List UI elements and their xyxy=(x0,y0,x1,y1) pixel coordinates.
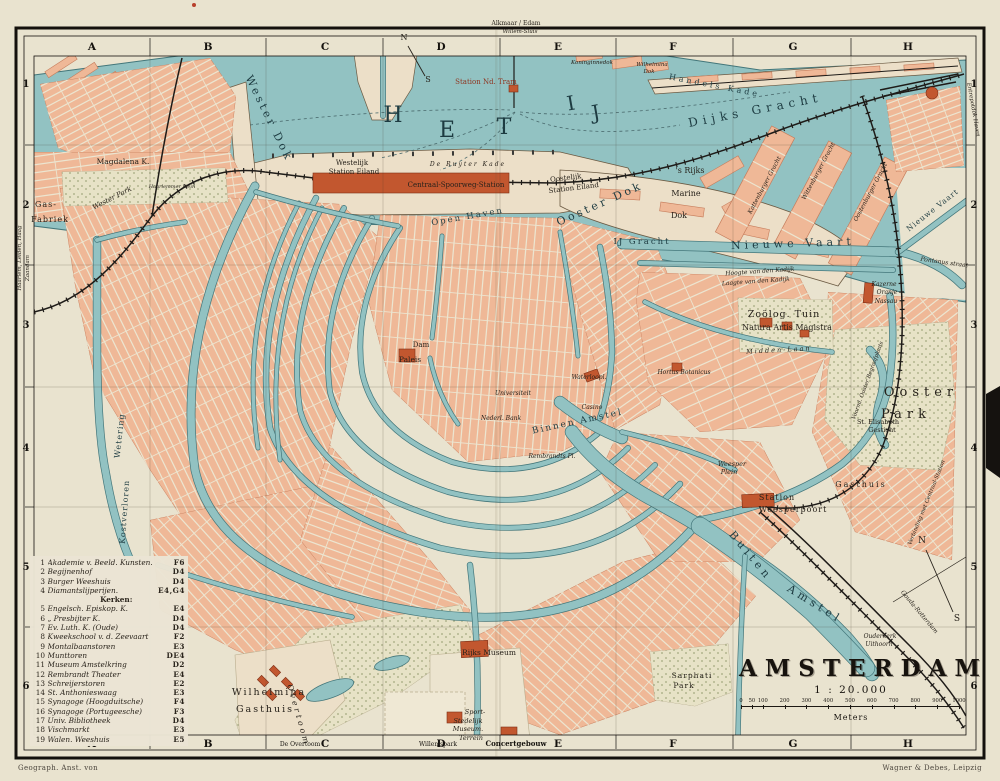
scale-tick xyxy=(937,705,938,709)
grid-number-left: 6 xyxy=(23,681,30,692)
grid-letter-top: H xyxy=(903,41,913,53)
map-page: AABBCCDDEEFFGGHH112233445566De OvertoomW… xyxy=(0,0,1000,781)
scale-tick xyxy=(763,705,764,709)
map-label: Uithoorn xyxy=(865,641,892,648)
map-label: Zaandam xyxy=(25,255,31,282)
map-label: Gasthuis xyxy=(835,480,886,489)
scale-tick-label: 1000 xyxy=(952,698,965,704)
scale-tick xyxy=(828,705,829,709)
map-label: Gas- xyxy=(35,200,57,209)
scale-tick-label: 100 xyxy=(758,698,768,704)
map-label: Station Eiland xyxy=(329,168,380,176)
scale-tick-label: 50 xyxy=(749,698,756,704)
map-label: Rembrandts Pl. xyxy=(527,453,575,460)
scale-bar: 0501002003004005006007008009001000 xyxy=(741,699,961,712)
legend-item: 3Burger WeeshuisD4 xyxy=(32,577,188,586)
grid-number-right: 4 xyxy=(971,443,978,454)
map-label: Dok xyxy=(642,69,655,75)
legend-item: 4Diamantslijperijen.E4,G4 xyxy=(32,586,188,595)
grid-number-left: 4 xyxy=(23,443,30,454)
map-label: Zoölog. Tuin xyxy=(748,309,821,320)
map-label: IJ Gracht xyxy=(613,237,670,247)
grid-letter-bottom: F xyxy=(669,738,677,750)
legend-item: 14St. AnthonieswaagE3 xyxy=(32,688,188,697)
border-street-label: Willemspark xyxy=(419,741,457,748)
legend-item: 17Univ. BibliotheekD4 xyxy=(32,716,188,725)
scale-tick-label: 300 xyxy=(801,698,811,704)
legend-item: 10MunttorenDE4 xyxy=(32,651,188,660)
map-label: Casino xyxy=(582,404,603,411)
grid-letter-bottom: C xyxy=(321,738,329,750)
map-label: Haarlemmer Plein xyxy=(148,184,195,190)
scale-tick-label: 200 xyxy=(780,698,790,704)
map-label: Marine xyxy=(671,189,700,198)
imprint-cartographer: Geograph. Anst. von xyxy=(18,764,98,772)
grid-letter-top: F xyxy=(669,41,677,53)
legend-item: 2BegijnenhofD4 xyxy=(32,567,188,576)
map-label: 's Rijks xyxy=(676,166,705,175)
map-label: Magdalena K. xyxy=(97,157,150,166)
scale-tick-label: 0 xyxy=(739,698,742,704)
map-label: S xyxy=(954,614,960,624)
map-label: Rijks Museum xyxy=(462,648,516,657)
map-label: Gesticht xyxy=(868,426,896,434)
map-label: Universiteit xyxy=(495,390,532,397)
map-label: Sarphati xyxy=(672,671,713,680)
map-label: Sport- xyxy=(465,708,485,716)
map-label: Ouderkerk xyxy=(864,633,897,640)
map-label: Paleis xyxy=(399,355,421,364)
grid-letter-bottom: E xyxy=(554,738,562,750)
grid-number-left: 1 xyxy=(23,79,30,90)
map-label: Station xyxy=(759,493,795,502)
legend-item: 5Engelsch. Episkop. K.E4 xyxy=(32,604,188,613)
map-label: T xyxy=(497,115,512,140)
grid-letter-top: C xyxy=(321,41,329,53)
border-street-label: Concertgebouw xyxy=(486,739,548,748)
map-label: Station Nd. Tram xyxy=(455,78,517,86)
grid-number-right: 6 xyxy=(971,681,978,692)
legend-item: 1Akademie v. Beeld. Kunsten.F6 xyxy=(32,558,188,567)
map-label: Centraal-Spoorweg-Station xyxy=(408,181,505,189)
map-label: Koninginnedok xyxy=(570,60,614,66)
map-label: Weesper xyxy=(718,460,747,468)
grid-number-left: 5 xyxy=(23,562,30,573)
scale-tick xyxy=(785,705,786,709)
legend-item: 7Ev. Luth. K. (Oude)D4 xyxy=(32,623,188,632)
scale-tick xyxy=(872,705,873,709)
border-street-label: De Overtoom xyxy=(280,741,321,748)
grid-letter-top: A xyxy=(87,41,97,53)
scale-tick-label: 500 xyxy=(845,698,855,704)
grid-number-right: 2 xyxy=(971,200,978,211)
map-label: Dok xyxy=(671,211,687,220)
legend-item: 19Walen. WeeshuisE5 xyxy=(32,735,188,744)
grid-letter-bottom: B xyxy=(204,738,213,750)
map-label: Fabriek xyxy=(31,215,69,224)
map-label: Museum. xyxy=(452,725,483,733)
map-label: Ooster xyxy=(884,385,958,400)
scale-tick-label: 600 xyxy=(867,698,877,704)
map-label: Kazerne xyxy=(870,281,897,288)
legend-section-header: Kerken: xyxy=(32,595,188,604)
scale-tick xyxy=(806,705,807,709)
scale-tick-label: 900 xyxy=(932,698,942,704)
grid-number-right: 3 xyxy=(971,320,978,331)
legend-item: 12Rembrandt TheaterE4 xyxy=(32,670,188,679)
map-label: Waterloopl. xyxy=(572,374,607,381)
map-label: Stedelijk xyxy=(453,717,482,725)
legend-item: 15Synagoge (Hoogduitsche)F4 xyxy=(32,697,188,706)
legend-item: 13SchreijerstorenE2 xyxy=(32,679,188,688)
grid-letter-bottom: G xyxy=(789,738,798,750)
map-label: Gasthuis xyxy=(236,704,294,715)
map-label: Nassau xyxy=(874,298,898,305)
scale-tick-label: 400 xyxy=(823,698,833,704)
map-label: Terrein xyxy=(459,734,483,742)
scale-tick-label: 800 xyxy=(910,698,920,704)
scale-unit-label: Meters xyxy=(731,713,971,722)
grid-letter-top: B xyxy=(204,41,213,53)
legend-panel: 1Akademie v. Beeld. Kunsten.F62Begijnenh… xyxy=(30,556,188,746)
title-block: AMSTERDAM 1 : 20.000 0501002003004005006… xyxy=(731,655,971,722)
map-label: Hortus Botanicus xyxy=(656,369,710,376)
map-label: Alkmaar / Edam xyxy=(491,20,541,27)
grid-letter-bottom: H xyxy=(903,738,913,750)
map-title: AMSTERDAM xyxy=(731,655,971,682)
map-label: St. Elisabeth xyxy=(857,418,899,426)
imprint-publisher: Wagner & Debes, Leipzig xyxy=(883,764,982,772)
map-label: E xyxy=(439,118,455,143)
map-label: Nederl. Bank xyxy=(480,415,522,422)
map-label: Haarlem, Leiden, Haag xyxy=(17,225,23,292)
scale-tick-label: 700 xyxy=(889,698,899,704)
map-label: H xyxy=(383,103,402,128)
legend-item: 8Kweekschool v. d. ZeevaartF2 xyxy=(32,632,188,641)
grid-number-left: 2 xyxy=(23,200,30,211)
map-label: Willem-Sluis xyxy=(503,29,538,35)
map-label: Dam xyxy=(413,341,430,349)
map-scale-ratio: 1 : 20.000 xyxy=(731,684,971,696)
scale-tick xyxy=(850,705,851,709)
map-label: Oranje xyxy=(877,289,898,296)
map-label: Westelijk xyxy=(336,159,369,167)
scale-tick xyxy=(894,705,895,709)
scale-tick xyxy=(741,705,742,709)
map-label: De Ruyter Kade xyxy=(429,161,506,168)
map-label: Natura Artis Magistra xyxy=(742,323,832,332)
legend-item: 6„ Presbijter K.D4 xyxy=(32,614,188,623)
grid-letter-top: D xyxy=(436,41,445,53)
map-label: N xyxy=(401,33,408,42)
scale-tick xyxy=(959,705,960,709)
legend-item: 16Synagoge (Portugeesche)F3 xyxy=(32,707,188,716)
grid-letter-top: E xyxy=(554,41,562,53)
map-label: Weesperpoort xyxy=(759,505,828,514)
legend-item: 11Museum AmstelkringD2 xyxy=(32,660,188,669)
grid-number-right: 5 xyxy=(971,562,978,573)
legend-item: 9MontalbaanstorenE3 xyxy=(32,642,188,651)
grid-number-left: 3 xyxy=(23,320,30,331)
legend-item: 18VischmarktE3 xyxy=(32,725,188,734)
map-label: Wilhelmina xyxy=(636,62,667,68)
grid-letter-top: G xyxy=(789,41,798,53)
scale-tick xyxy=(915,705,916,709)
map-label: N xyxy=(918,536,926,546)
map-label: S xyxy=(425,75,430,84)
scale-tick xyxy=(752,705,753,709)
map-label: Plein xyxy=(720,468,738,476)
map-label: Park xyxy=(673,681,694,690)
